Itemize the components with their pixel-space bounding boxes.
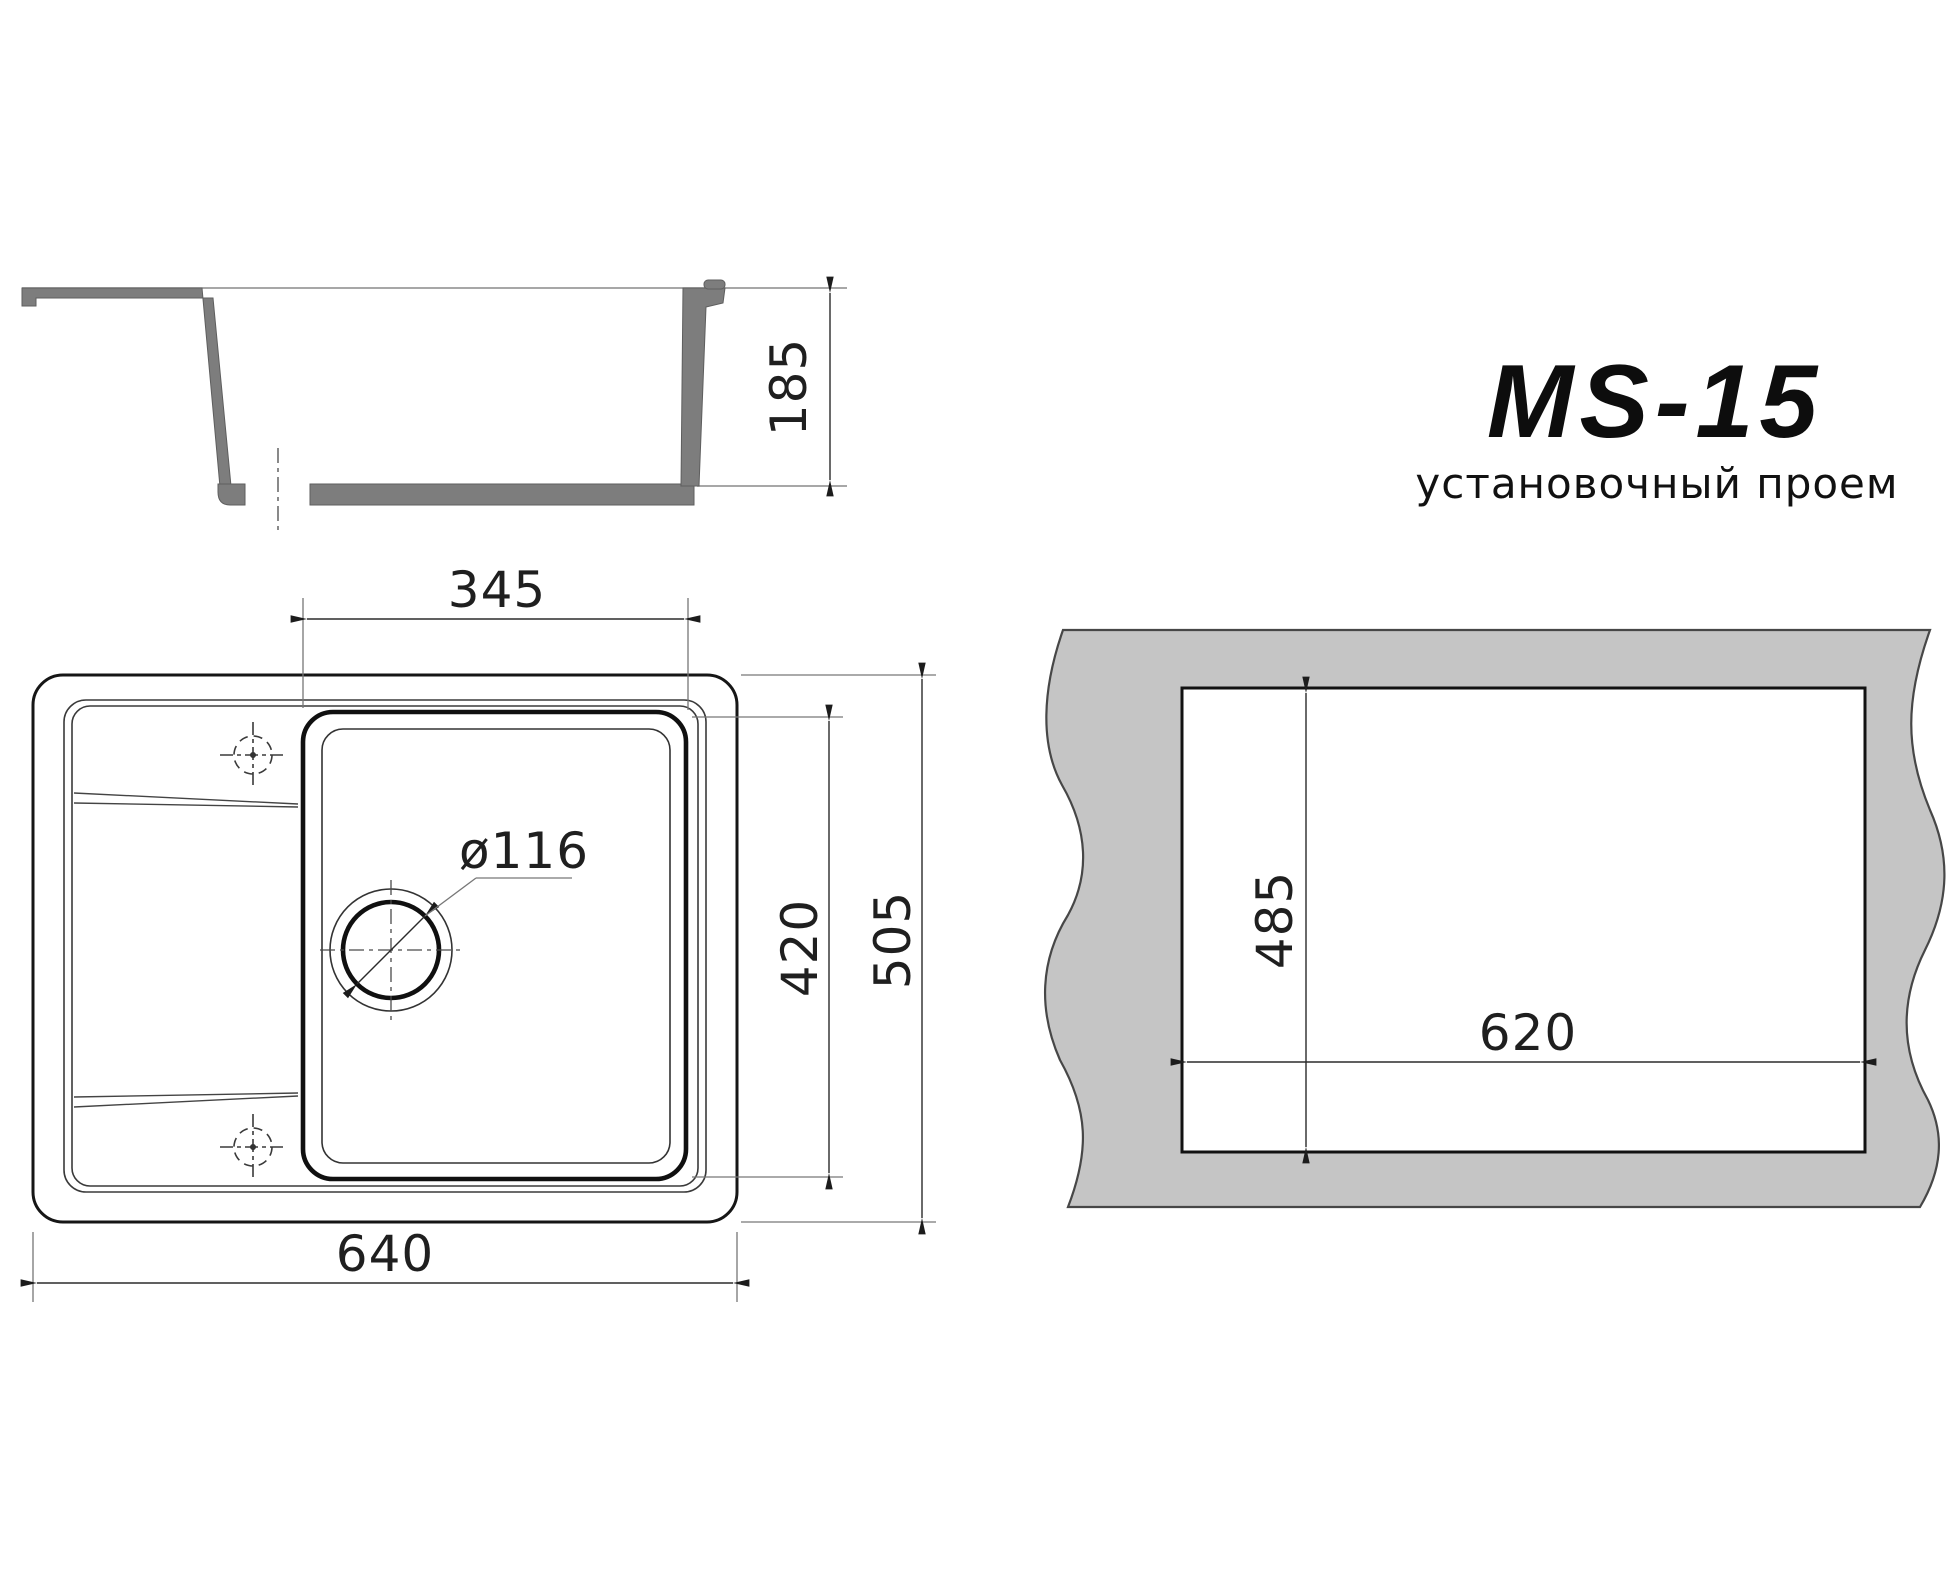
profile-bottom-band: [310, 484, 694, 505]
subtitle-installation-opening: установочный проем: [1415, 459, 1898, 508]
drawing-sheet: 185 MS-15 установочный проем: [0, 0, 1947, 1593]
profile-right-wall: [681, 288, 725, 486]
dimension-label-185: 185: [760, 338, 818, 436]
profile-drainboard-and-left-wall: [22, 288, 231, 487]
cutout-view: 485 620: [1045, 630, 1944, 1207]
dimension-label-420: 420: [771, 899, 829, 997]
profile-right-rim-bump: [704, 280, 725, 289]
plan-view: ø116 345 420 505 640: [33, 561, 936, 1302]
technical-drawing: 185 MS-15 установочный проем: [0, 0, 1947, 1593]
dimension-label-640: 640: [336, 1225, 434, 1283]
profile-bottom-left-chunk: [218, 484, 245, 505]
dimension-label-345: 345: [448, 561, 546, 619]
overall-width-dimension: 640: [33, 1225, 737, 1302]
dimension-label-620: 620: [1479, 1004, 1577, 1062]
model-title: MS-15: [1487, 344, 1823, 460]
marker-dot: [250, 1144, 256, 1150]
dimension-label-505: 505: [864, 891, 922, 989]
title-block: MS-15 установочный проем: [1415, 344, 1898, 508]
section-depth-dimension: 185: [760, 293, 830, 480]
marker-dot: [250, 752, 256, 758]
dimension-label-116: ø116: [459, 822, 589, 880]
bowl-edge: [303, 712, 686, 1179]
section-view: 185: [22, 280, 847, 532]
dimension-label-485: 485: [1246, 871, 1304, 969]
